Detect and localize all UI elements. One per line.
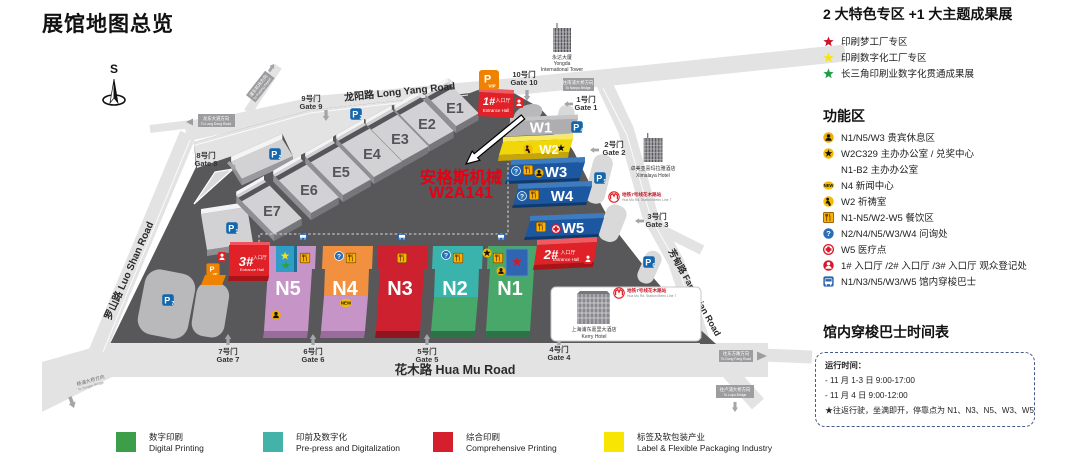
svg-text:5: 5 <box>604 179 607 185</box>
svg-text:往卢浦大桥方向: 往卢浦大桥方向 <box>720 386 751 393</box>
svg-text:N1: N1 <box>497 278 523 300</box>
svg-text:往东方路方向: 往东方路方向 <box>723 350 749 357</box>
svg-text:W3: W3 <box>545 164 568 181</box>
svg-text:W2: W2 <box>539 142 559 157</box>
svg-text:Gate 8: Gate 8 <box>195 159 218 168</box>
svg-text:上海浦东嘉里大酒店: 上海浦东嘉里大酒店 <box>571 326 616 333</box>
svg-text:N3: N3 <box>387 278 413 300</box>
svg-text:3: 3 <box>360 115 363 121</box>
svg-text:花木路 Hua Mu Road: 花木路 Hua Mu Road <box>395 362 516 377</box>
svg-text:卓美亚喜玛拉雅酒店: 卓美亚喜玛拉雅酒店 <box>630 165 675 172</box>
svg-text:E4: E4 <box>363 147 381 163</box>
svg-text:往南浦大桥方向: 往南浦大桥方向 <box>563 79 594 86</box>
svg-text:?: ? <box>826 229 831 238</box>
svg-text:1: 1 <box>236 229 239 235</box>
svg-text:龙东大道方向: 龙东大道方向 <box>203 115 229 122</box>
svg-text:E2: E2 <box>418 117 436 133</box>
svg-text:To Dong Fang Road: To Dong Fang Road <box>721 357 751 361</box>
svg-text:1#: 1# <box>483 96 496 108</box>
svg-text:S: S <box>110 62 118 76</box>
svg-text:N4: N4 <box>332 278 358 300</box>
svg-text:Hua Mu Rd. Station Metro Line: Hua Mu Rd. Station Metro Line 7 <box>622 198 671 202</box>
svg-text:Entrance Hall: Entrance Hall <box>483 108 509 113</box>
svg-text:Gate 3: Gate 3 <box>646 220 669 229</box>
svg-text:入口厅: 入口厅 <box>560 250 575 256</box>
svg-text:Gate 6: Gate 6 <box>302 355 325 364</box>
svg-text:4: 4 <box>581 128 584 134</box>
svg-text:地铁7号线花木路站: 地铁7号线花木路站 <box>627 287 667 294</box>
svg-text:Gate 7: Gate 7 <box>217 355 240 364</box>
svg-text:Kerry Hotel: Kerry Hotel <box>581 334 606 340</box>
svg-text:Entrance Hall: Entrance Hall <box>553 257 579 262</box>
svg-text:W5: W5 <box>562 220 585 237</box>
svg-text:Entrance Hall: Entrance Hall <box>240 267 264 272</box>
svg-text:Gate 9: Gate 9 <box>300 102 323 111</box>
svg-text:2: 2 <box>279 155 282 161</box>
svg-text:To Long Dong Road: To Long Dong Road <box>201 122 231 126</box>
svg-text:Ximalaya Hotel: Ximalaya Hotel <box>636 173 670 179</box>
svg-text:E5: E5 <box>332 165 350 181</box>
svg-text:6: 6 <box>653 263 656 269</box>
svg-text:永达大厦: 永达大厦 <box>552 54 572 61</box>
svg-text:W2A141: W2A141 <box>429 184 493 202</box>
svg-text:N5: N5 <box>275 278 301 300</box>
svg-text:W1: W1 <box>530 120 553 137</box>
svg-text:N2: N2 <box>442 278 468 300</box>
svg-text:地铁7号线花木路站: 地铁7号线花木路站 <box>622 191 662 198</box>
svg-text:Hua Mu Rd. Station Metro Line: Hua Mu Rd. Station Metro Line 7 <box>627 294 676 298</box>
svg-text:To Lupu Bridge: To Lupu Bridge <box>724 393 747 397</box>
svg-text:E1: E1 <box>446 101 464 117</box>
svg-text:E3: E3 <box>391 132 409 148</box>
svg-text:Gate 1: Gate 1 <box>575 103 598 112</box>
svg-text:Gate 4: Gate 4 <box>548 353 572 362</box>
svg-text:E6: E6 <box>300 183 318 199</box>
svg-text:W4: W4 <box>551 188 574 205</box>
svg-text:To Nanpu Bridge: To Nanpu Bridge <box>565 86 590 90</box>
svg-text:7: 7 <box>172 301 175 307</box>
svg-text:E7: E7 <box>263 204 281 220</box>
svg-text:NEW: NEW <box>824 183 834 188</box>
svg-text:Gate 2: Gate 2 <box>603 148 626 157</box>
svg-text:入口厅: 入口厅 <box>495 98 510 104</box>
svg-text:International Tower: International Tower <box>541 67 583 73</box>
svg-text:Gate 10: Gate 10 <box>510 78 537 87</box>
